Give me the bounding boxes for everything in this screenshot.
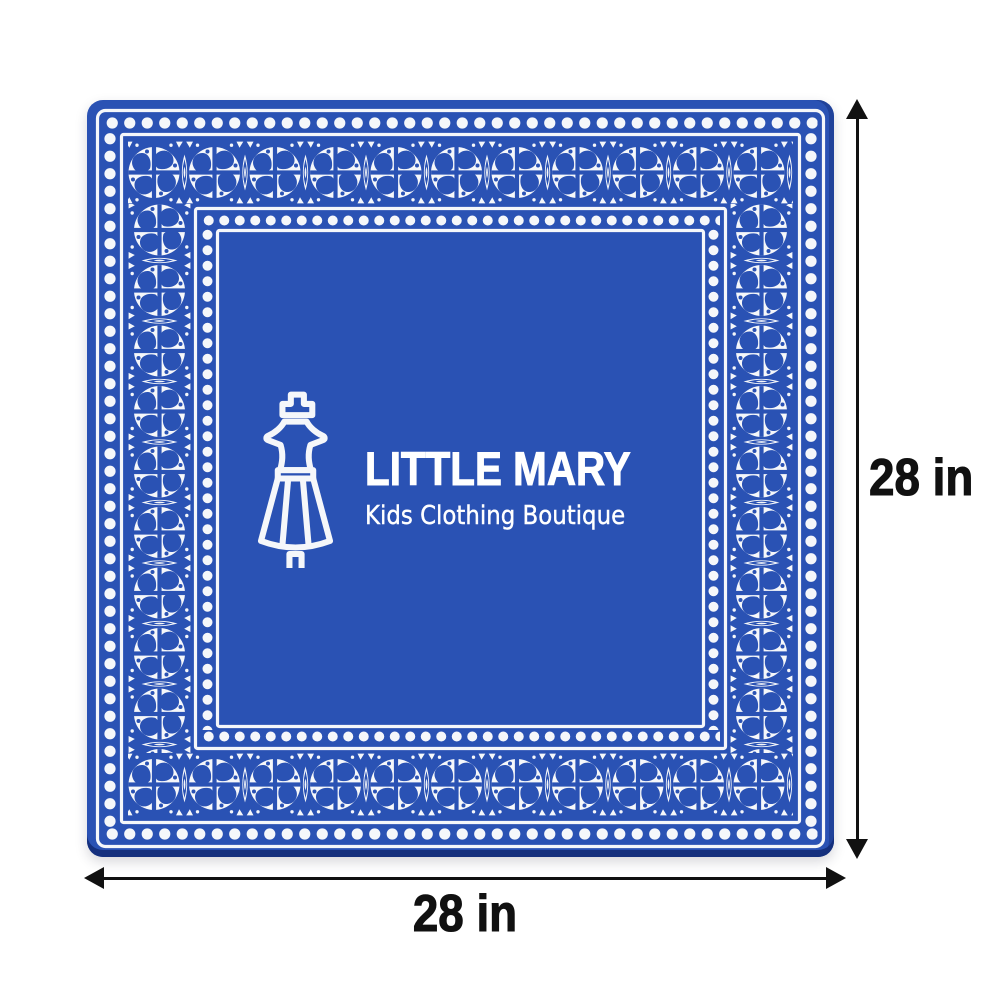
logo-text-block: LITTLE MARY Kids Clothing Boutique [365, 444, 674, 530]
brand-name: LITTLE MARY [365, 444, 631, 493]
mockup-canvas: LITTLE MARY Kids Clothing Boutique 28 in… [0, 0, 1000, 1000]
width-arrow-line [102, 877, 828, 880]
width-dimension-label: 28 in [130, 888, 801, 940]
arrow-down-icon [846, 839, 868, 859]
bandana-product: LITTLE MARY Kids Clothing Boutique [87, 100, 834, 857]
arrow-up-icon [846, 99, 868, 119]
dress-form-icon [247, 389, 344, 568]
height-arrow-line [856, 117, 859, 841]
brand-tagline: Kids Clothing Boutique [365, 501, 637, 531]
arrow-left-icon [84, 867, 104, 889]
height-dimension-label: 28 in [869, 452, 973, 504]
brand-logo: LITTLE MARY Kids Clothing Boutique [220, 233, 701, 724]
arrow-right-icon [826, 867, 846, 889]
